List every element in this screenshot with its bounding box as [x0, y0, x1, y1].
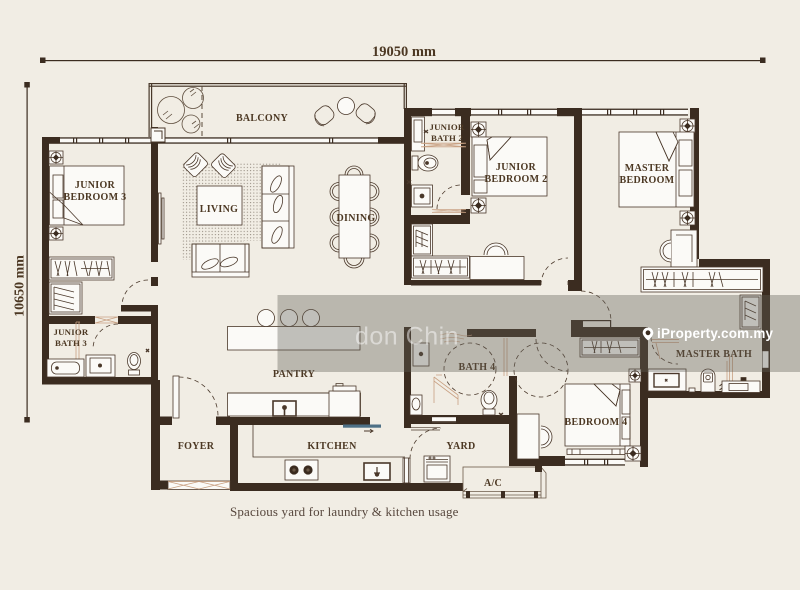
svg-text:FOYER: FOYER [178, 441, 215, 452]
svg-text:MASTER: MASTER [625, 163, 670, 174]
svg-text:JUNIOR: JUNIOR [54, 327, 89, 337]
svg-text:DINING: DINING [336, 213, 375, 224]
svg-text:BEDROOM 2: BEDROOM 2 [485, 174, 548, 185]
svg-text:19050 mm: 19050 mm [372, 44, 436, 60]
svg-text:BEDROOM 4: BEDROOM 4 [565, 417, 628, 428]
svg-text:JUNIOR: JUNIOR [75, 180, 116, 191]
svg-text:LIVING: LIVING [200, 204, 238, 215]
svg-text:don Chin: don Chin [355, 323, 459, 351]
svg-text:BATH 2: BATH 2 [431, 133, 463, 143]
svg-text:Spacious yard for laundry & ki: Spacious yard for laundry & kitchen usag… [230, 504, 459, 519]
svg-text:BATH 3: BATH 3 [55, 338, 87, 348]
svg-text:BEDROOM: BEDROOM [620, 175, 675, 186]
svg-text:BEDROOM 3: BEDROOM 3 [64, 192, 127, 203]
svg-text:iProperty.com.my: iProperty.com.my [657, 326, 774, 341]
svg-text:YARD: YARD [446, 441, 475, 452]
svg-text:A/C: A/C [484, 478, 502, 489]
svg-text:BALCONY: BALCONY [236, 113, 289, 124]
svg-text:JUNIOR: JUNIOR [496, 162, 537, 173]
svg-text:10650 mm: 10650 mm [13, 255, 28, 317]
svg-text:JUNIOR: JUNIOR [430, 122, 465, 132]
svg-text:KITCHEN: KITCHEN [307, 441, 357, 452]
